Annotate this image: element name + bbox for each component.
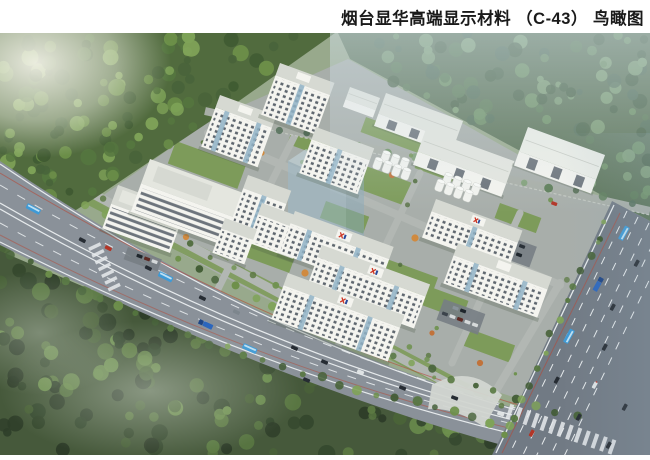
aerial-rendering	[0, 33, 650, 455]
title-bar: 烟台显华高端显示材料 （C-43） 鸟瞰图	[0, 0, 650, 33]
page-title: 烟台显华高端显示材料 （C-43） 鸟瞰图	[341, 5, 644, 29]
scene-svg	[0, 33, 650, 455]
haze-right-edge	[560, 133, 650, 455]
